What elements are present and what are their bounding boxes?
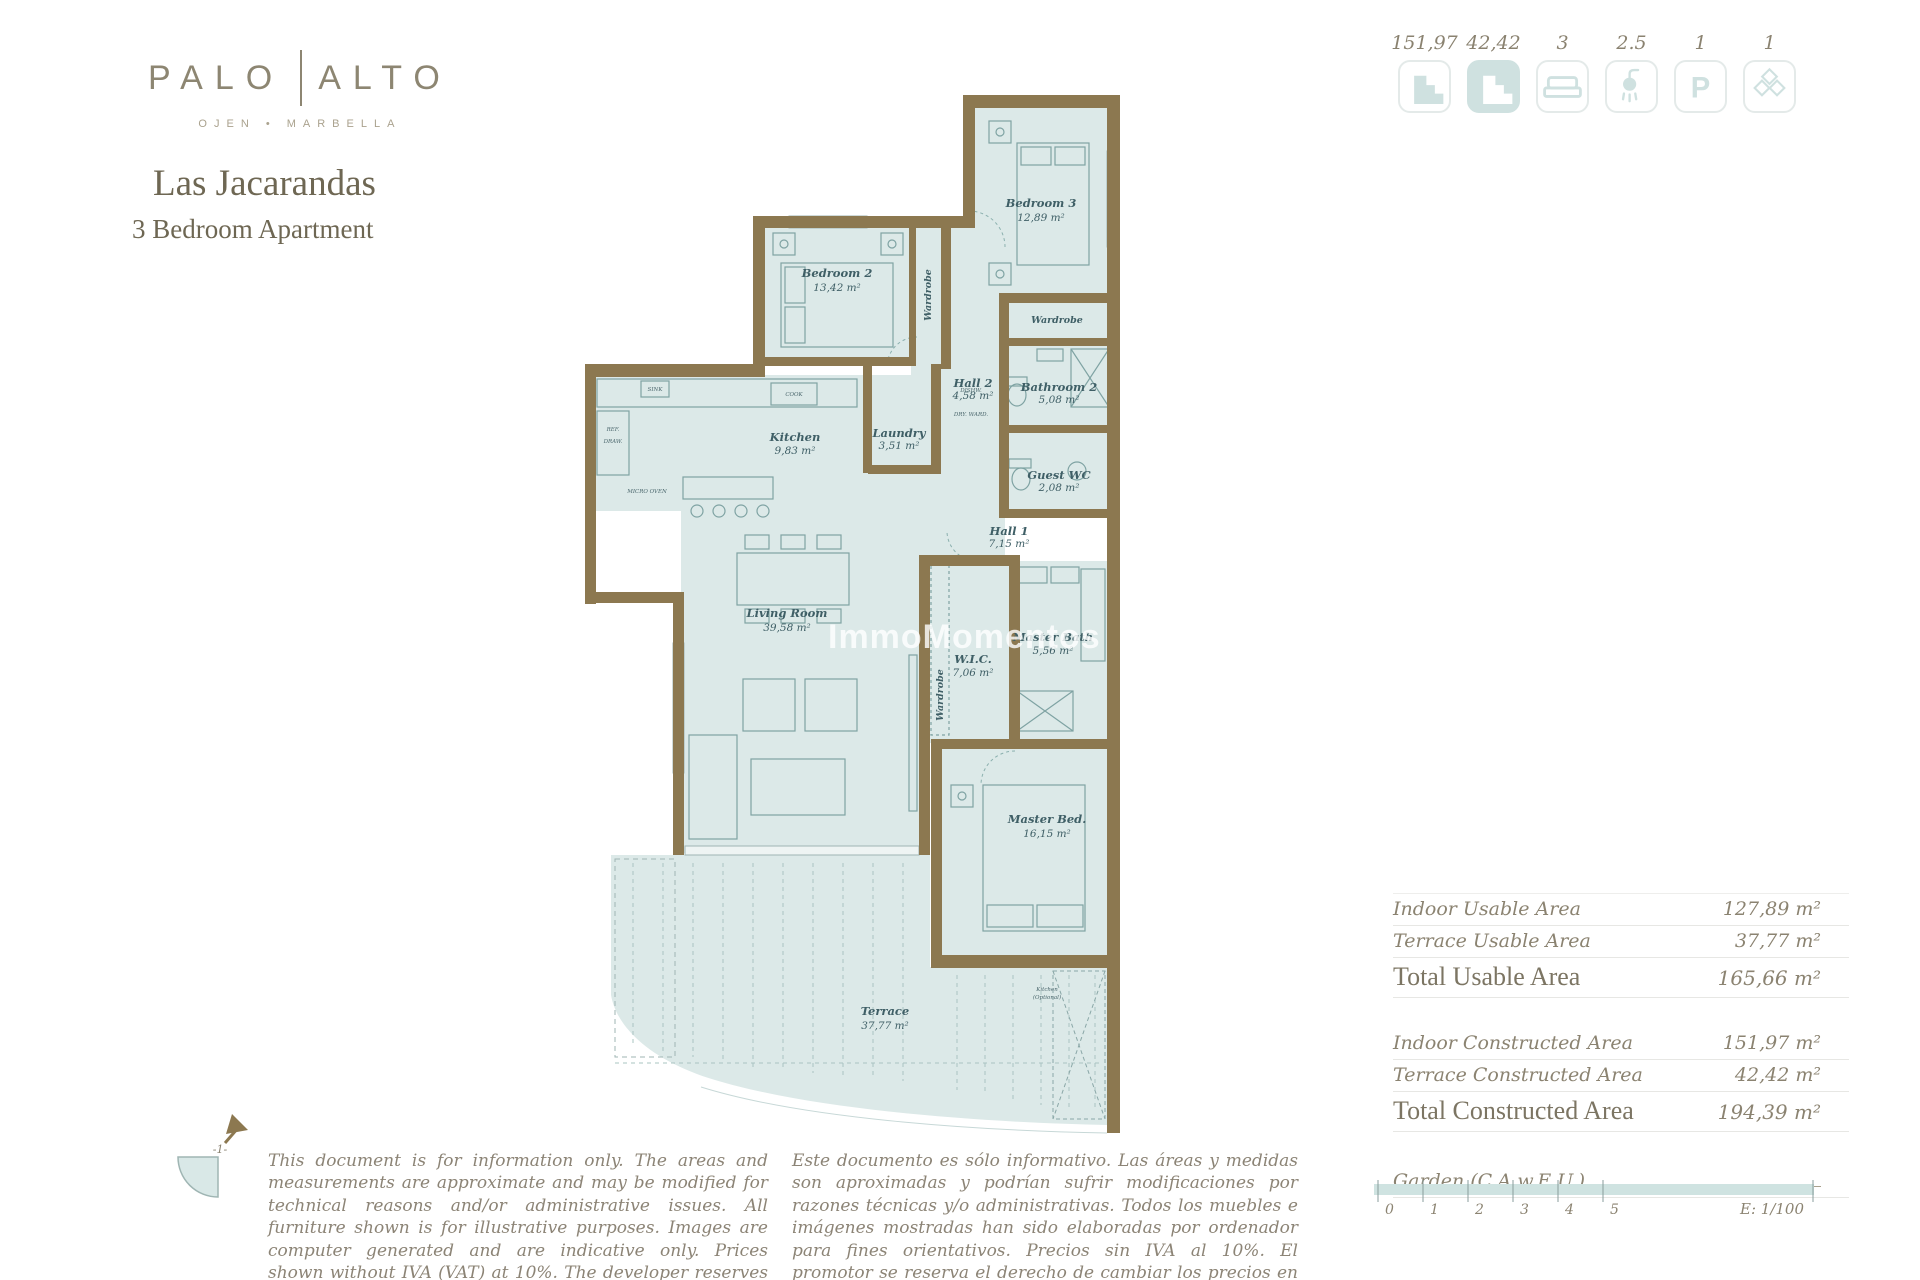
scale-tick-3: 3 <box>1520 1202 1529 1218</box>
label-dishwasher: DISHW. <box>959 388 982 394</box>
areas-table: Indoor Usable Area 127,89 m² Terrace Usa… <box>1393 893 1849 1198</box>
indoor-plan-icon <box>1398 60 1451 113</box>
label-hall1-area: 7,15 m² <box>989 538 1030 550</box>
storage-icon <box>1743 60 1796 113</box>
label-guest-wc: Guest WC <box>1027 468 1091 482</box>
stat-bathrooms: 2.5 <box>1605 32 1658 113</box>
label-wardrobe-bedroom3: Wardrobe <box>1031 315 1083 326</box>
brochure-page: PALO ALTO OJEN • MARBELLA Las Jacarandas… <box>0 0 1920 1280</box>
label-bedroom3: Bedroom 3 <box>1005 196 1077 210</box>
label-micro-oven: MICRO OVEN <box>626 489 667 495</box>
label-living-room: Living Room <box>746 606 828 620</box>
floor-plan: Bedroom 3 12,89 m² Wardrobe Bedroom 2 13… <box>585 95 1130 1135</box>
brand-logo: PALO ALTO OJEN • MARBELLA <box>148 50 452 130</box>
table-row-total: Total Constructed Area 194,39 m² <box>1393 1092 1849 1132</box>
stat-bedrooms: 3 <box>1536 32 1589 113</box>
bed-icon <box>1536 60 1589 113</box>
compass: -1- <box>168 1106 268 1206</box>
room-fills <box>593 103 1113 1125</box>
stat-parking: 1 P <box>1674 32 1727 113</box>
disclaimer-english: This document is for information only. T… <box>268 1150 768 1280</box>
label-laundry-area: 3,51 m² <box>879 440 920 452</box>
terrace-plan-icon <box>1467 60 1520 113</box>
svg-text:P: P <box>1691 72 1710 104</box>
parking-icon: P <box>1674 60 1727 113</box>
shower-icon <box>1605 60 1658 113</box>
table-row: Indoor Usable Area 127,89 m² <box>1393 894 1849 926</box>
label-bedroom2: Bedroom 2 <box>801 266 873 280</box>
label-bathroom2: Bathroom 2 <box>1020 380 1097 394</box>
page-subtitle: 3 Bedroom Apartment <box>132 214 373 245</box>
disclaimer-spanish: Este documento es sólo informativo. Las … <box>792 1150 1298 1280</box>
label-hall1: Hall 1 <box>988 524 1028 538</box>
label-cooktop: COOK <box>785 392 803 398</box>
label-bedroom2-area: 13,42 m² <box>813 282 861 294</box>
brand-subtitle: OJEN • MARBELLA <box>148 118 452 130</box>
label-terrace: Terrace <box>861 1004 909 1018</box>
label-fridge: REF. <box>606 427 620 433</box>
scale-tick-5: 5 <box>1610 1202 1619 1218</box>
stat-terrace-area-value: 42,42 <box>1466 32 1520 54</box>
table-row-total: Total Usable Area 165,66 m² <box>1393 958 1849 998</box>
scale-bar: 0 1 2 3 4 5 E: 1/100 <box>1372 1176 1820 1220</box>
table-row: Terrace Constructed Area 42,42 m² <box>1393 1060 1849 1092</box>
scale-tick-4: 4 <box>1564 1202 1574 1218</box>
label-bedroom3-area: 12,89 m² <box>1017 212 1065 224</box>
table-row: Terrace Usable Area 37,77 m² <box>1393 926 1849 958</box>
table-gap <box>1393 998 1849 1028</box>
table-row: Indoor Constructed Area 151,97 m² <box>1393 1028 1849 1060</box>
floor-indicator: -1- <box>213 1143 228 1156</box>
scale-tick-2: 2 <box>1474 1202 1484 1218</box>
compass-quarter-arc <box>178 1157 218 1197</box>
label-bathroom2-area: 5,08 m² <box>1039 394 1080 406</box>
stat-indoor-area: 151,97 <box>1398 32 1451 113</box>
stat-storage-value: 1 <box>1763 32 1775 54</box>
stat-bedrooms-value: 3 <box>1556 32 1568 54</box>
label-terrace-area: 37,77 m² <box>861 1020 909 1032</box>
stat-bathrooms-value: 2.5 <box>1616 32 1646 54</box>
stat-terrace-area: 42,42 <box>1467 32 1520 113</box>
label-wardrobe-master: Wardrobe <box>935 669 946 721</box>
stat-indoor-area-value: 151,97 <box>1391 32 1457 54</box>
label-optional-kitchen: Kitchen <box>1035 987 1058 993</box>
scale-ratio-label: E: 1/100 <box>1739 1200 1804 1218</box>
scale-tick-1: 1 <box>1430 1202 1439 1218</box>
stat-storage: 1 <box>1743 32 1796 113</box>
label-laundry: Laundry <box>871 426 926 440</box>
label-wic-area: 7,06 m² <box>953 667 994 679</box>
stat-parking-value: 1 <box>1694 32 1706 54</box>
north-arrow-icon <box>226 1114 248 1134</box>
scale-tick-0: 0 <box>1385 1202 1394 1218</box>
watermark: ImmoMomentos <box>828 618 1101 657</box>
stats-row: 151,97 42,42 3 2.5 <box>1398 32 1796 113</box>
label-wardrobe-bedroom2: Wardrobe <box>923 269 934 321</box>
label-sink: SINK <box>648 387 664 393</box>
label-master-bed: Master Bed. <box>1007 812 1086 826</box>
page-title: Las Jacarandas <box>153 162 376 205</box>
label-living-room-area: 39,58 m² <box>763 622 811 634</box>
label-drawers: DRAW. <box>603 439 623 445</box>
brand-word-left: PALO <box>148 59 284 98</box>
label-master-bed-area: 16,15 m² <box>1023 828 1071 840</box>
label-optional-kitchen-2: (Optional) <box>1033 994 1061 1001</box>
brand-word-right: ALTO <box>318 59 452 98</box>
label-guest-wc-area: 2,08 m² <box>1038 482 1080 494</box>
label-kitchen: Kitchen <box>769 430 821 444</box>
brand-divider <box>300 50 302 106</box>
label-kitchen-area: 9,83 m² <box>775 445 816 457</box>
label-dryer-wardrobe: DRY. WARD. <box>953 412 989 418</box>
